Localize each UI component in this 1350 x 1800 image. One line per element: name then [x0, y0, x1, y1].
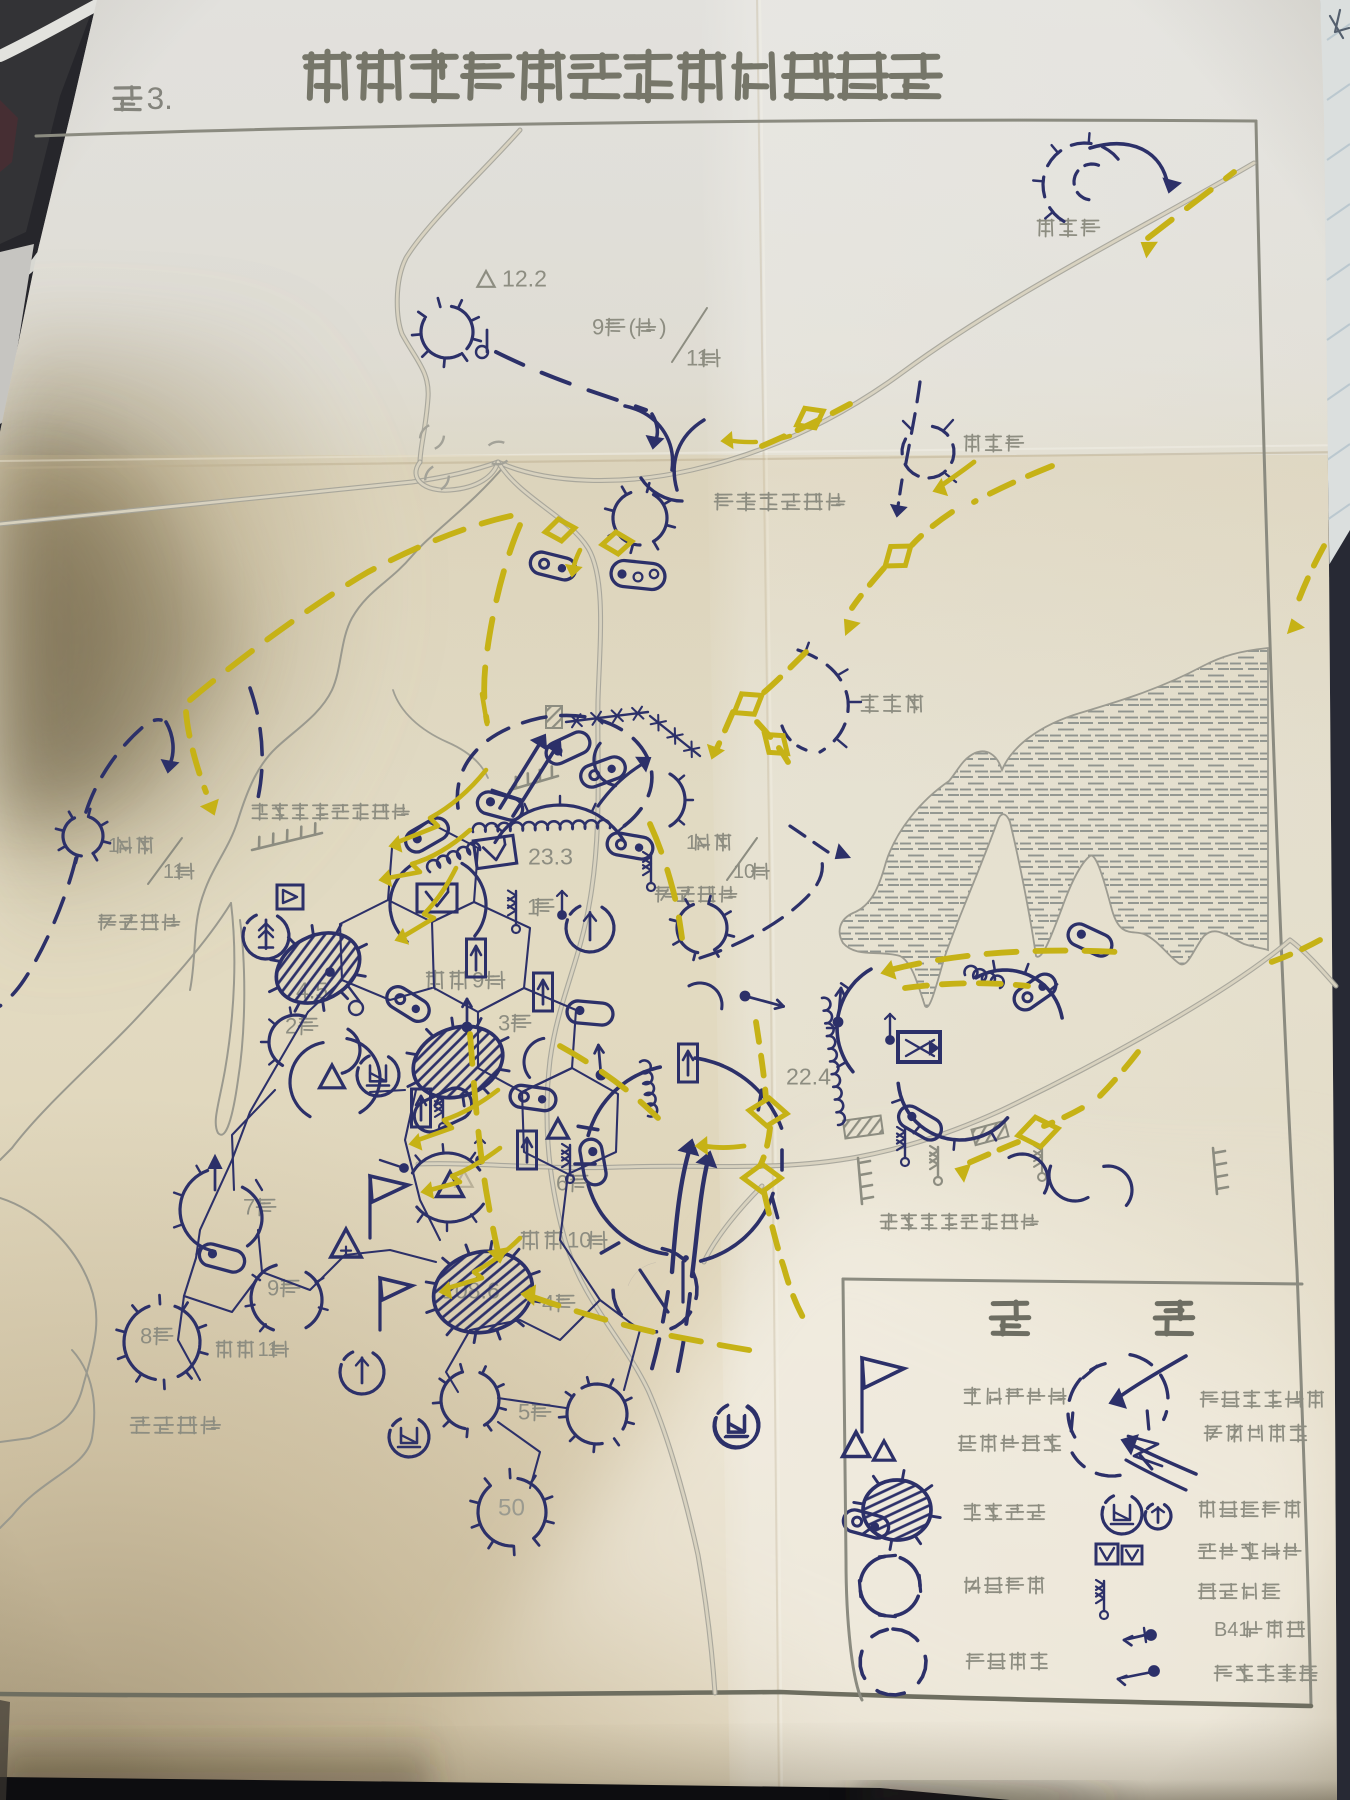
svg-text:9: 9: [472, 968, 484, 993]
svg-text:3: 3: [498, 1011, 510, 1036]
svg-text:(: (: [629, 315, 637, 340]
svg-text:3.: 3.: [147, 80, 173, 116]
svg-text:23.3: 23.3: [528, 844, 573, 870]
svg-text:50: 50: [498, 1494, 525, 1521]
svg-text:7: 7: [243, 1195, 255, 1220]
svg-text:8: 8: [140, 1324, 152, 1349]
svg-text:B41: B41: [1214, 1619, 1249, 1641]
svg-text:11: 11: [258, 1339, 279, 1361]
svg-text:11: 11: [163, 861, 184, 883]
svg-text:10: 10: [733, 861, 755, 883]
svg-text:9: 9: [267, 1276, 279, 1301]
svg-text:): ): [659, 315, 666, 340]
svg-text:22.4: 22.4: [786, 1064, 831, 1090]
svg-text:12.2: 12.2: [502, 266, 547, 292]
svg-text:9: 9: [592, 315, 604, 340]
